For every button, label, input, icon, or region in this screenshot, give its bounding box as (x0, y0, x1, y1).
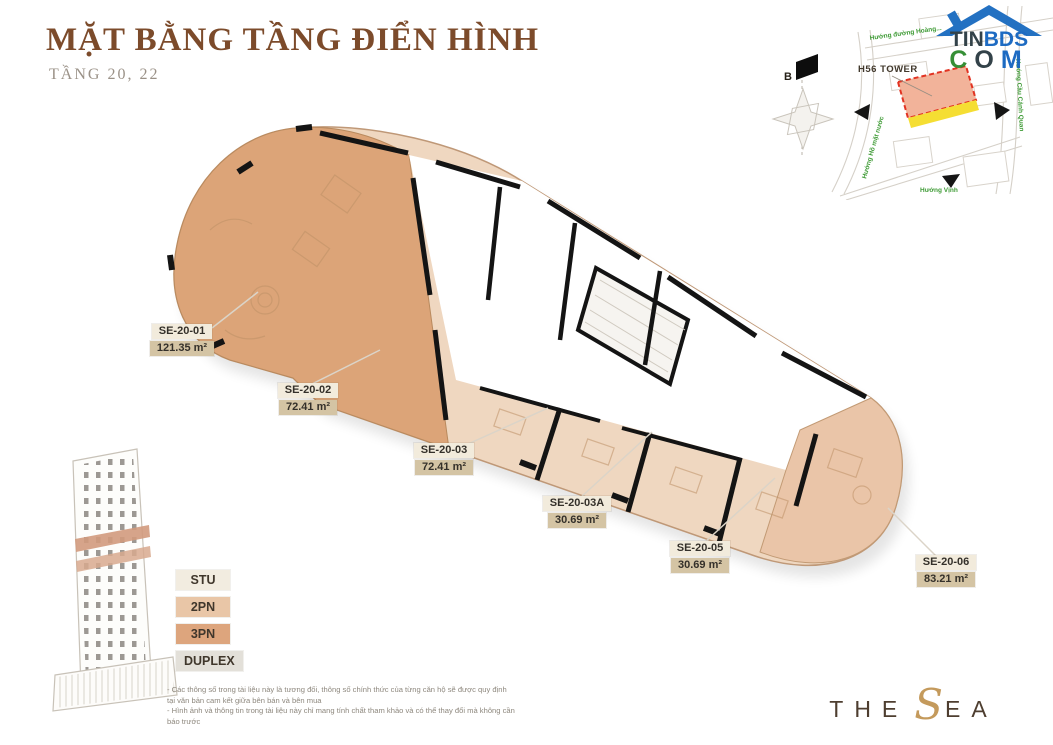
unit-id: SE-20-01 (152, 324, 212, 339)
unit-area: 121.35 m² (150, 341, 214, 356)
street-label-bottom: Hướng Vịnh (920, 187, 958, 194)
unit-label-se-20-05: SE-20-05 30.69 m² (660, 541, 740, 573)
unit-label-se-20-06: SE-20-06 83.21 m² (906, 555, 986, 587)
watermark-c: C (949, 46, 974, 74)
unit-label-se-20-02: SE-20-02 72.41 m² (268, 383, 348, 415)
unit-id: SE-20-05 (670, 541, 730, 556)
watermark-line2: COM (934, 46, 1044, 75)
unit-area: 72.41 m² (415, 460, 473, 475)
brand-script-s: S (914, 684, 943, 726)
disclaimer: - Các thông số trong tài liệu này là tươ… (167, 685, 515, 728)
compass-flag (796, 54, 818, 80)
unit-area: 30.69 m² (671, 558, 729, 573)
watermark-o: O (974, 46, 1000, 74)
watermark-m: M (1001, 46, 1029, 74)
unit-id: SE-20-02 (278, 383, 338, 398)
compass-north-label: B (784, 71, 792, 83)
disclaimer-line-2: - Hình ảnh và thông tin trong tài liệu n… (167, 706, 515, 727)
the-sea-logo: THE S EA (806, 684, 1021, 726)
compass-icon: B (773, 54, 833, 156)
unit-label-se-20-01: SE-20-01 121.35 m² (142, 324, 222, 356)
brand-ea: EA (945, 688, 998, 723)
unit-id: SE-20-03 (414, 443, 474, 458)
unit-id: SE-20-06 (916, 555, 976, 570)
unit-id: SE-20-03A (543, 496, 611, 511)
unit-area: 83.21 m² (917, 572, 975, 587)
disclaimer-line-1: - Các thông số trong tài liệu này là tươ… (167, 685, 515, 706)
tinbds-watermark: TINBDS COM (934, 2, 1044, 74)
unit-area: 72.41 m² (279, 400, 337, 415)
unit-area: 30.69 m² (548, 513, 606, 528)
map-tower-label: H56 TOWER (858, 64, 918, 75)
unit-label-se-20-03: SE-20-03 72.41 m² (404, 443, 484, 475)
floor-plan-page: MẶT BẰNG TẦNG ĐIỂN HÌNH TẦNG 20, 22 (0, 0, 1053, 745)
brand-the: THE (829, 688, 908, 723)
unit-label-se-20-03a: SE-20-03A 30.69 m² (532, 496, 622, 528)
